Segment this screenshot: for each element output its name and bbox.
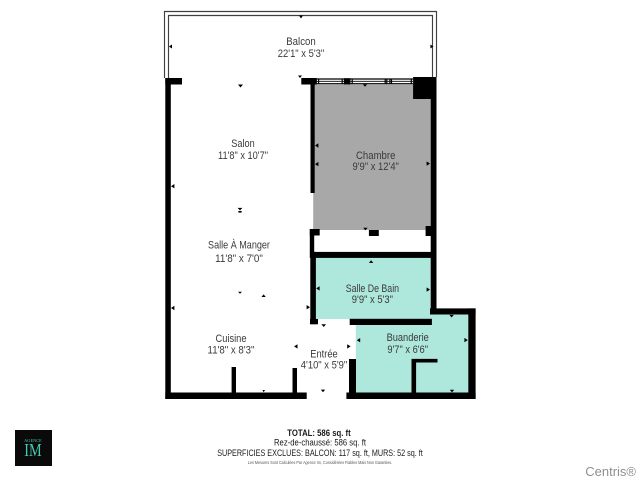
svg-text:11'8" x 7'0": 11'8" x 7'0"	[215, 253, 263, 265]
svg-text:11'8" x 10'7": 11'8" x 10'7"	[218, 150, 268, 162]
svg-text:Centris®: Centris®	[585, 464, 636, 479]
svg-text:Cuisine: Cuisine	[216, 333, 247, 345]
svg-text:9'7" x 6'6": 9'7" x 6'6"	[387, 344, 428, 356]
svg-text:Salle À Manger: Salle À Manger	[208, 238, 270, 251]
svg-text:SUPERFICIES EXCLUES: BALCON: 1: SUPERFICIES EXCLUES: BALCON: 117 sq. ft,…	[217, 448, 423, 459]
svg-text:Buanderie: Buanderie	[387, 332, 429, 344]
svg-text:9'9" x 5'3": 9'9" x 5'3"	[352, 294, 393, 306]
svg-text:22'1" x 5'3": 22'1" x 5'3"	[278, 48, 325, 60]
svg-text:Les Mesures Sont Calculées Par: Les Mesures Sont Calculées Par Agence Im…	[248, 460, 392, 465]
svg-text:IM: IM	[24, 440, 42, 460]
svg-text:Balcon: Balcon	[286, 36, 316, 48]
svg-text:Salon: Salon	[231, 138, 254, 150]
svg-text:4'10" x 5'9": 4'10" x 5'9"	[301, 359, 348, 371]
svg-text:9'9" x 12'4": 9'9" x 12'4"	[353, 161, 400, 173]
svg-text:11'8" x 8'3": 11'8" x 8'3"	[208, 344, 255, 356]
